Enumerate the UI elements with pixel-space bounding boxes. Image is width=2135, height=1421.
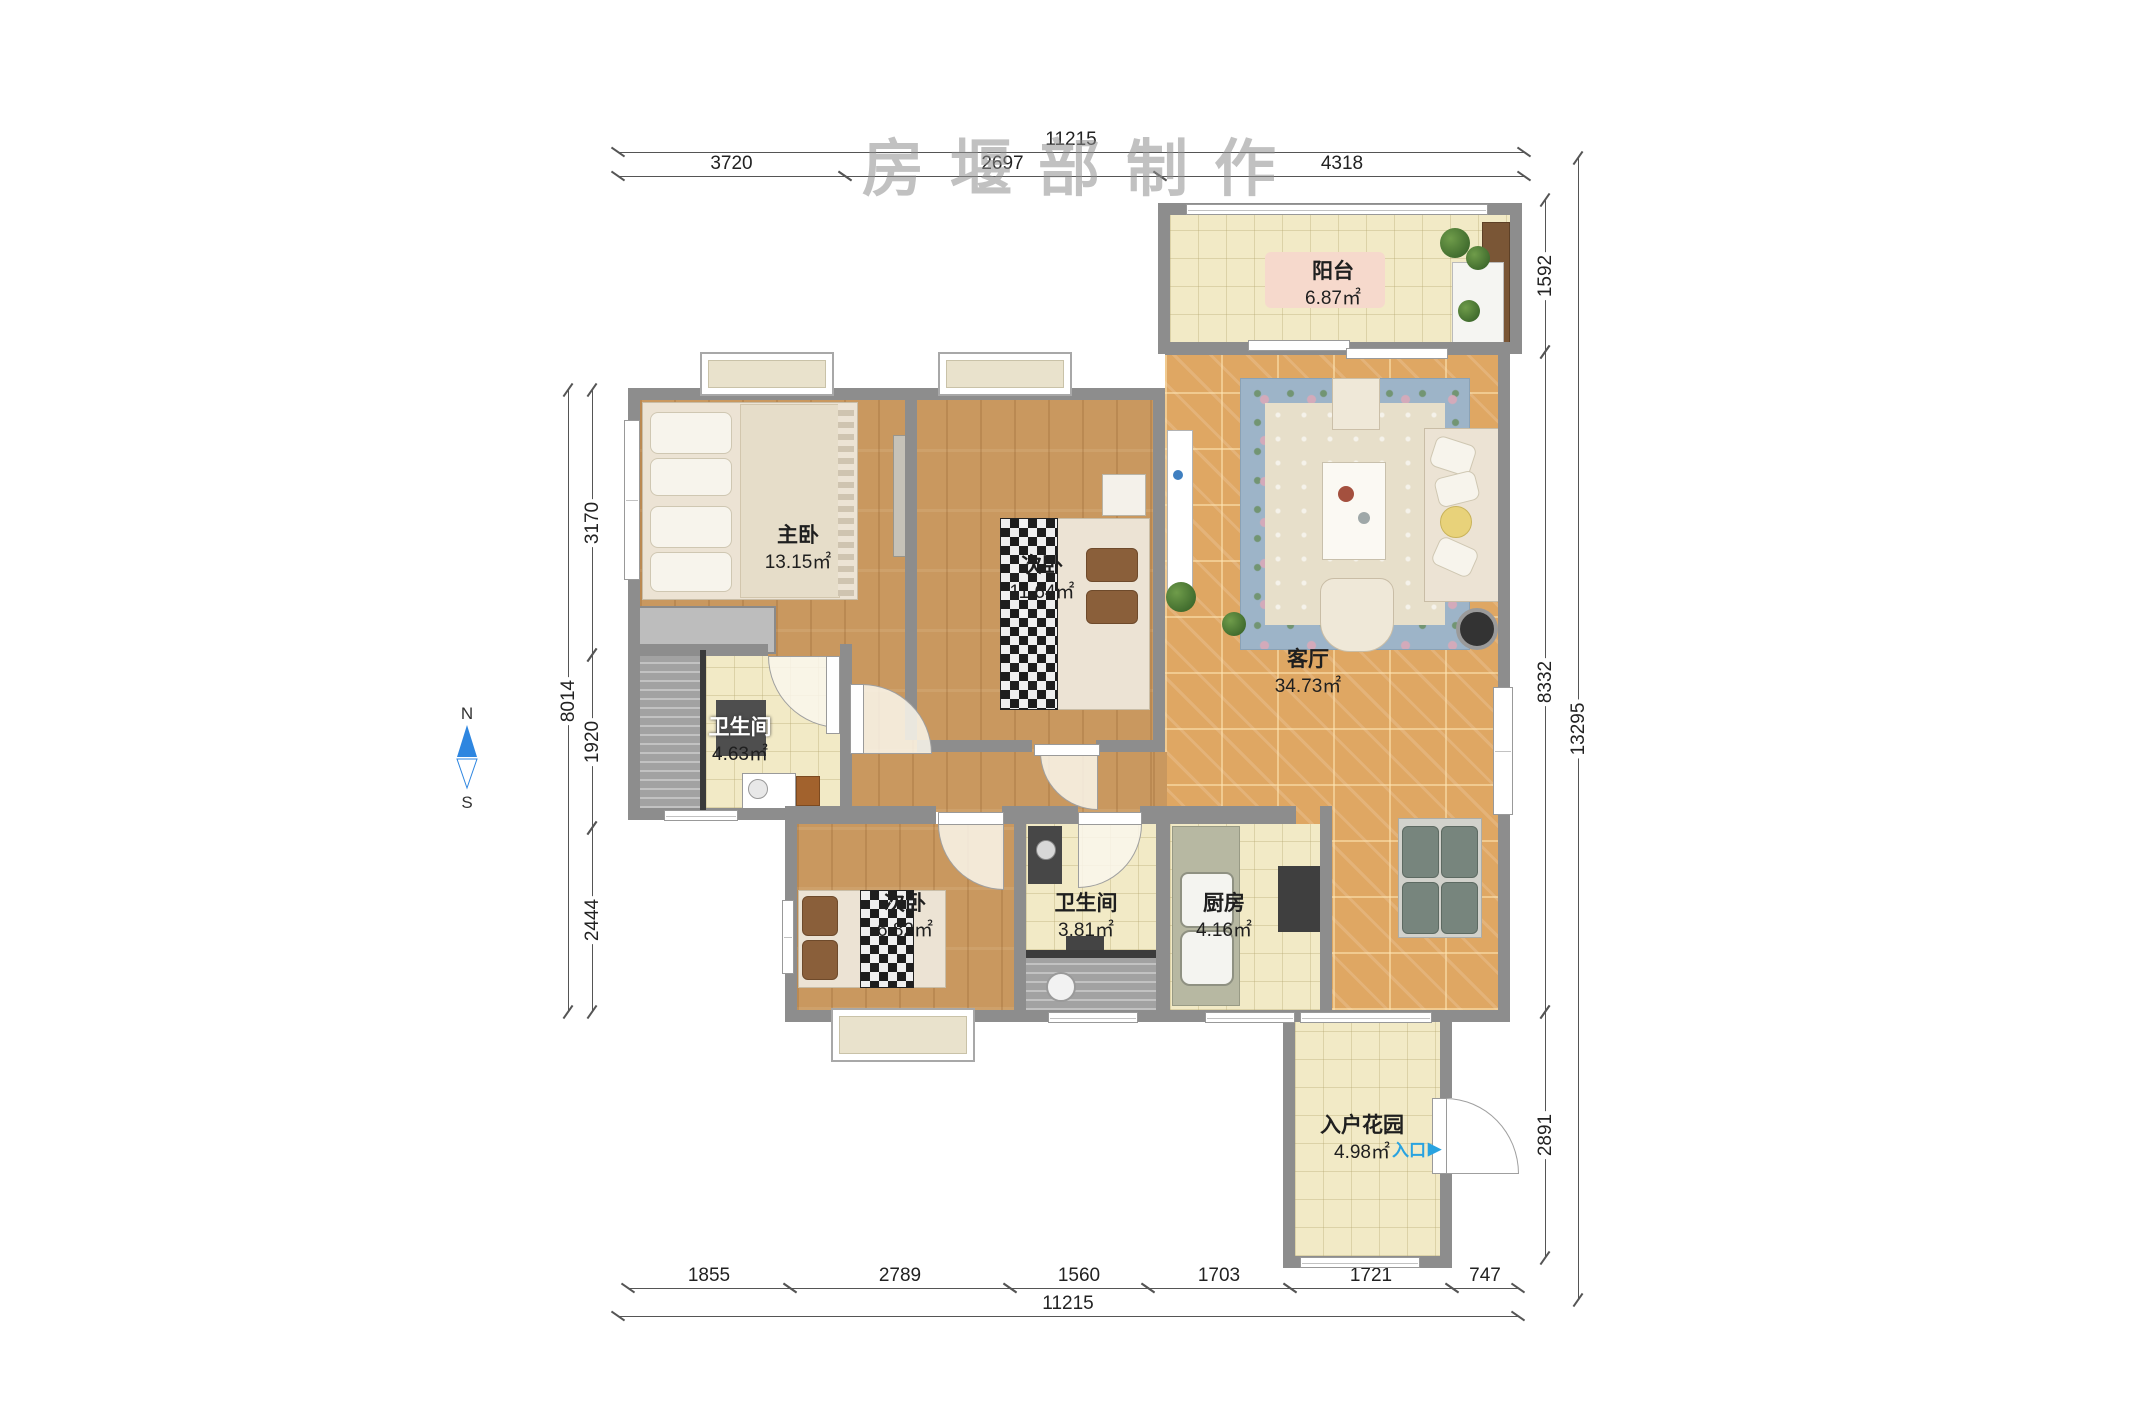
living-room-label: 客厅 34.73㎡	[1228, 646, 1388, 700]
sliding-door	[1346, 348, 1448, 359]
dim-bottom-seg5: 1721	[1290, 1288, 1452, 1289]
bathroom2-name: 卫生间	[1006, 890, 1166, 918]
armchair	[1320, 578, 1394, 652]
bay-window-glass	[708, 360, 826, 388]
dim-bottom-seg6: 747	[1452, 1288, 1518, 1289]
balcony-label: 阳台 6.87㎡	[1253, 258, 1413, 312]
dim-value: 2444	[582, 896, 604, 944]
kitchen-name: 厨房	[1144, 890, 1304, 918]
wall	[1153, 400, 1165, 752]
master-bed-pillow	[650, 458, 732, 496]
dim-bottom-total: 11215	[618, 1316, 1518, 1317]
dim-value: 1920	[582, 717, 604, 765]
window	[1300, 1012, 1432, 1023]
plant	[1166, 582, 1196, 612]
wall	[905, 400, 917, 740]
dim-bottom-seg4: 1703	[1148, 1288, 1290, 1289]
dim-left-seg2: 1920	[592, 655, 593, 828]
wall	[1440, 1010, 1452, 1098]
wall	[1096, 740, 1153, 752]
window	[624, 420, 640, 580]
kitchen-area: 4.16㎡	[1144, 918, 1304, 944]
dim-left-seg3: 2444	[592, 828, 593, 1012]
bathroom1-name: 卫生间	[660, 714, 820, 742]
dim-left-total: 8014	[568, 390, 569, 1012]
bedroom2-area: 11.64㎡	[962, 580, 1122, 606]
dim-value: 2789	[876, 1265, 924, 1287]
dim-bottom-seg2: 2789	[790, 1288, 1010, 1289]
bedroom2-label: 次卧 11.64㎡	[962, 552, 1122, 606]
master-bedroom-name: 主卧	[718, 522, 878, 550]
dim-bottom-seg1: 1855	[628, 1288, 790, 1289]
living-room-name: 客厅	[1228, 646, 1388, 674]
window	[1205, 1012, 1295, 1023]
bedroom3-label: 次卧 6.82㎡	[825, 890, 985, 944]
bathroom2-door	[1078, 812, 1142, 825]
master-bedroom-label: 主卧 13.15㎡	[718, 522, 878, 576]
balcony-area: 6.87㎡	[1253, 286, 1413, 312]
corridor-floor	[1153, 752, 1167, 810]
bathroom1-sink	[748, 779, 768, 799]
dim-right-seg1: 1592	[1545, 200, 1546, 352]
floorplan-canvas: 房堰部制作 N S	[0, 0, 2135, 1421]
tv-decor-dot	[1173, 470, 1183, 480]
window	[1300, 1257, 1420, 1268]
coffee-table	[1322, 462, 1386, 560]
dining-chair	[1441, 826, 1478, 878]
wall	[628, 644, 768, 656]
living-room-area: 34.73㎡	[1228, 674, 1388, 700]
master-bed-pillow	[650, 412, 732, 454]
compass-north-label: N	[432, 705, 502, 724]
wall	[785, 806, 936, 824]
bedroom2-bed-blanket	[1000, 518, 1058, 710]
dim-value: 13295	[1568, 700, 1590, 759]
balcony-plant	[1466, 246, 1490, 270]
compass: N S	[432, 705, 502, 813]
balcony-name: 阳台	[1253, 258, 1413, 286]
window	[782, 900, 794, 974]
dim-value: 2891	[1535, 1111, 1557, 1159]
wall-laundry-divider	[1026, 950, 1156, 958]
dim-right-seg2: 8332	[1545, 352, 1546, 1012]
dim-value: 11215	[1039, 1293, 1096, 1315]
floor-cushion	[1332, 378, 1380, 430]
wall	[1158, 203, 1170, 354]
master-bedroom-area: 13.15㎡	[718, 550, 878, 576]
bedroom2-nightstand	[1102, 474, 1146, 516]
coffee-table-decor	[1338, 486, 1354, 502]
window	[1493, 687, 1513, 815]
bedroom2-name: 次卧	[962, 552, 1122, 580]
bathroom1-area: 4.63㎡	[660, 742, 820, 768]
entrance-label: 入口	[1392, 1136, 1426, 1161]
bay-window	[700, 352, 834, 396]
dim-left-seg1: 3170	[592, 390, 593, 655]
bathroom1-hamper	[796, 776, 820, 806]
laundry-washer	[1046, 972, 1076, 1002]
compass-needle-icon	[450, 724, 484, 790]
bedroom2-door	[1034, 744, 1100, 756]
master-door	[850, 684, 864, 754]
speaker	[1456, 608, 1498, 650]
dim-right-seg3: 2891	[1545, 1012, 1546, 1258]
bay-window-glass	[839, 1016, 967, 1054]
dim-value: 3720	[707, 153, 755, 175]
dim-bottom-seg3: 1560	[1010, 1288, 1148, 1289]
entry-door-arc	[1445, 1098, 1519, 1174]
dim-value: 8332	[1535, 658, 1557, 706]
dim-value: 1703	[1195, 1265, 1243, 1287]
dining-chair	[1402, 882, 1439, 934]
bay-window	[831, 1008, 975, 1062]
bathroom2-sink	[1036, 840, 1056, 860]
bay-window	[938, 352, 1072, 396]
compass-south-label: S	[432, 794, 502, 813]
dim-value: 3170	[582, 498, 604, 546]
bay-window-glass	[946, 360, 1064, 388]
dining-chair	[1402, 826, 1439, 878]
dim-value: 1721	[1347, 1265, 1395, 1287]
dining-chair	[1441, 882, 1478, 934]
balcony-plant	[1440, 228, 1470, 258]
bedroom3-door	[938, 812, 1004, 825]
bathroom1-door	[826, 656, 840, 734]
tv-cabinet	[1167, 430, 1193, 600]
coffee-table-decor	[1358, 512, 1370, 524]
bedroom3-name: 次卧	[825, 890, 985, 918]
wall	[1440, 1172, 1452, 1268]
bathroom2-area: 3.81㎡	[1006, 918, 1166, 944]
dim-value: 1855	[685, 1265, 733, 1287]
dim-value: 4318	[1318, 153, 1366, 175]
dim-value: 1592	[1535, 252, 1557, 300]
bathroom1-label: 卫生间 4.63㎡	[660, 714, 820, 768]
window	[1048, 1012, 1138, 1023]
dim-right-total: 13295	[1578, 158, 1579, 1300]
watermark-text: 房堰部制作	[862, 118, 1302, 208]
kitchen-label: 厨房 4.16㎡	[1144, 890, 1304, 944]
bedroom3-pillow	[802, 940, 838, 980]
sliding-door	[1248, 340, 1350, 351]
wall	[1320, 806, 1332, 1022]
wall	[1510, 203, 1522, 354]
dim-value: 1560	[1055, 1265, 1103, 1287]
dim-value: 8014	[558, 677, 580, 725]
bedroom3-area: 6.82㎡	[825, 918, 985, 944]
sofa-pillow-yellow	[1440, 506, 1472, 538]
dim-value: 747	[1466, 1265, 1504, 1287]
plant	[1222, 612, 1246, 636]
entrance-arrow-icon: ▶	[1428, 1139, 1441, 1159]
balcony-plant	[1458, 300, 1480, 322]
dim-top-seg1: 3720	[618, 176, 845, 177]
wall	[917, 740, 1032, 752]
window	[664, 810, 738, 821]
wall	[1498, 342, 1510, 1022]
bathroom2-label: 卫生间 3.81㎡	[1006, 890, 1166, 944]
entrance-tag: 入口 ▶	[1392, 1136, 1441, 1161]
